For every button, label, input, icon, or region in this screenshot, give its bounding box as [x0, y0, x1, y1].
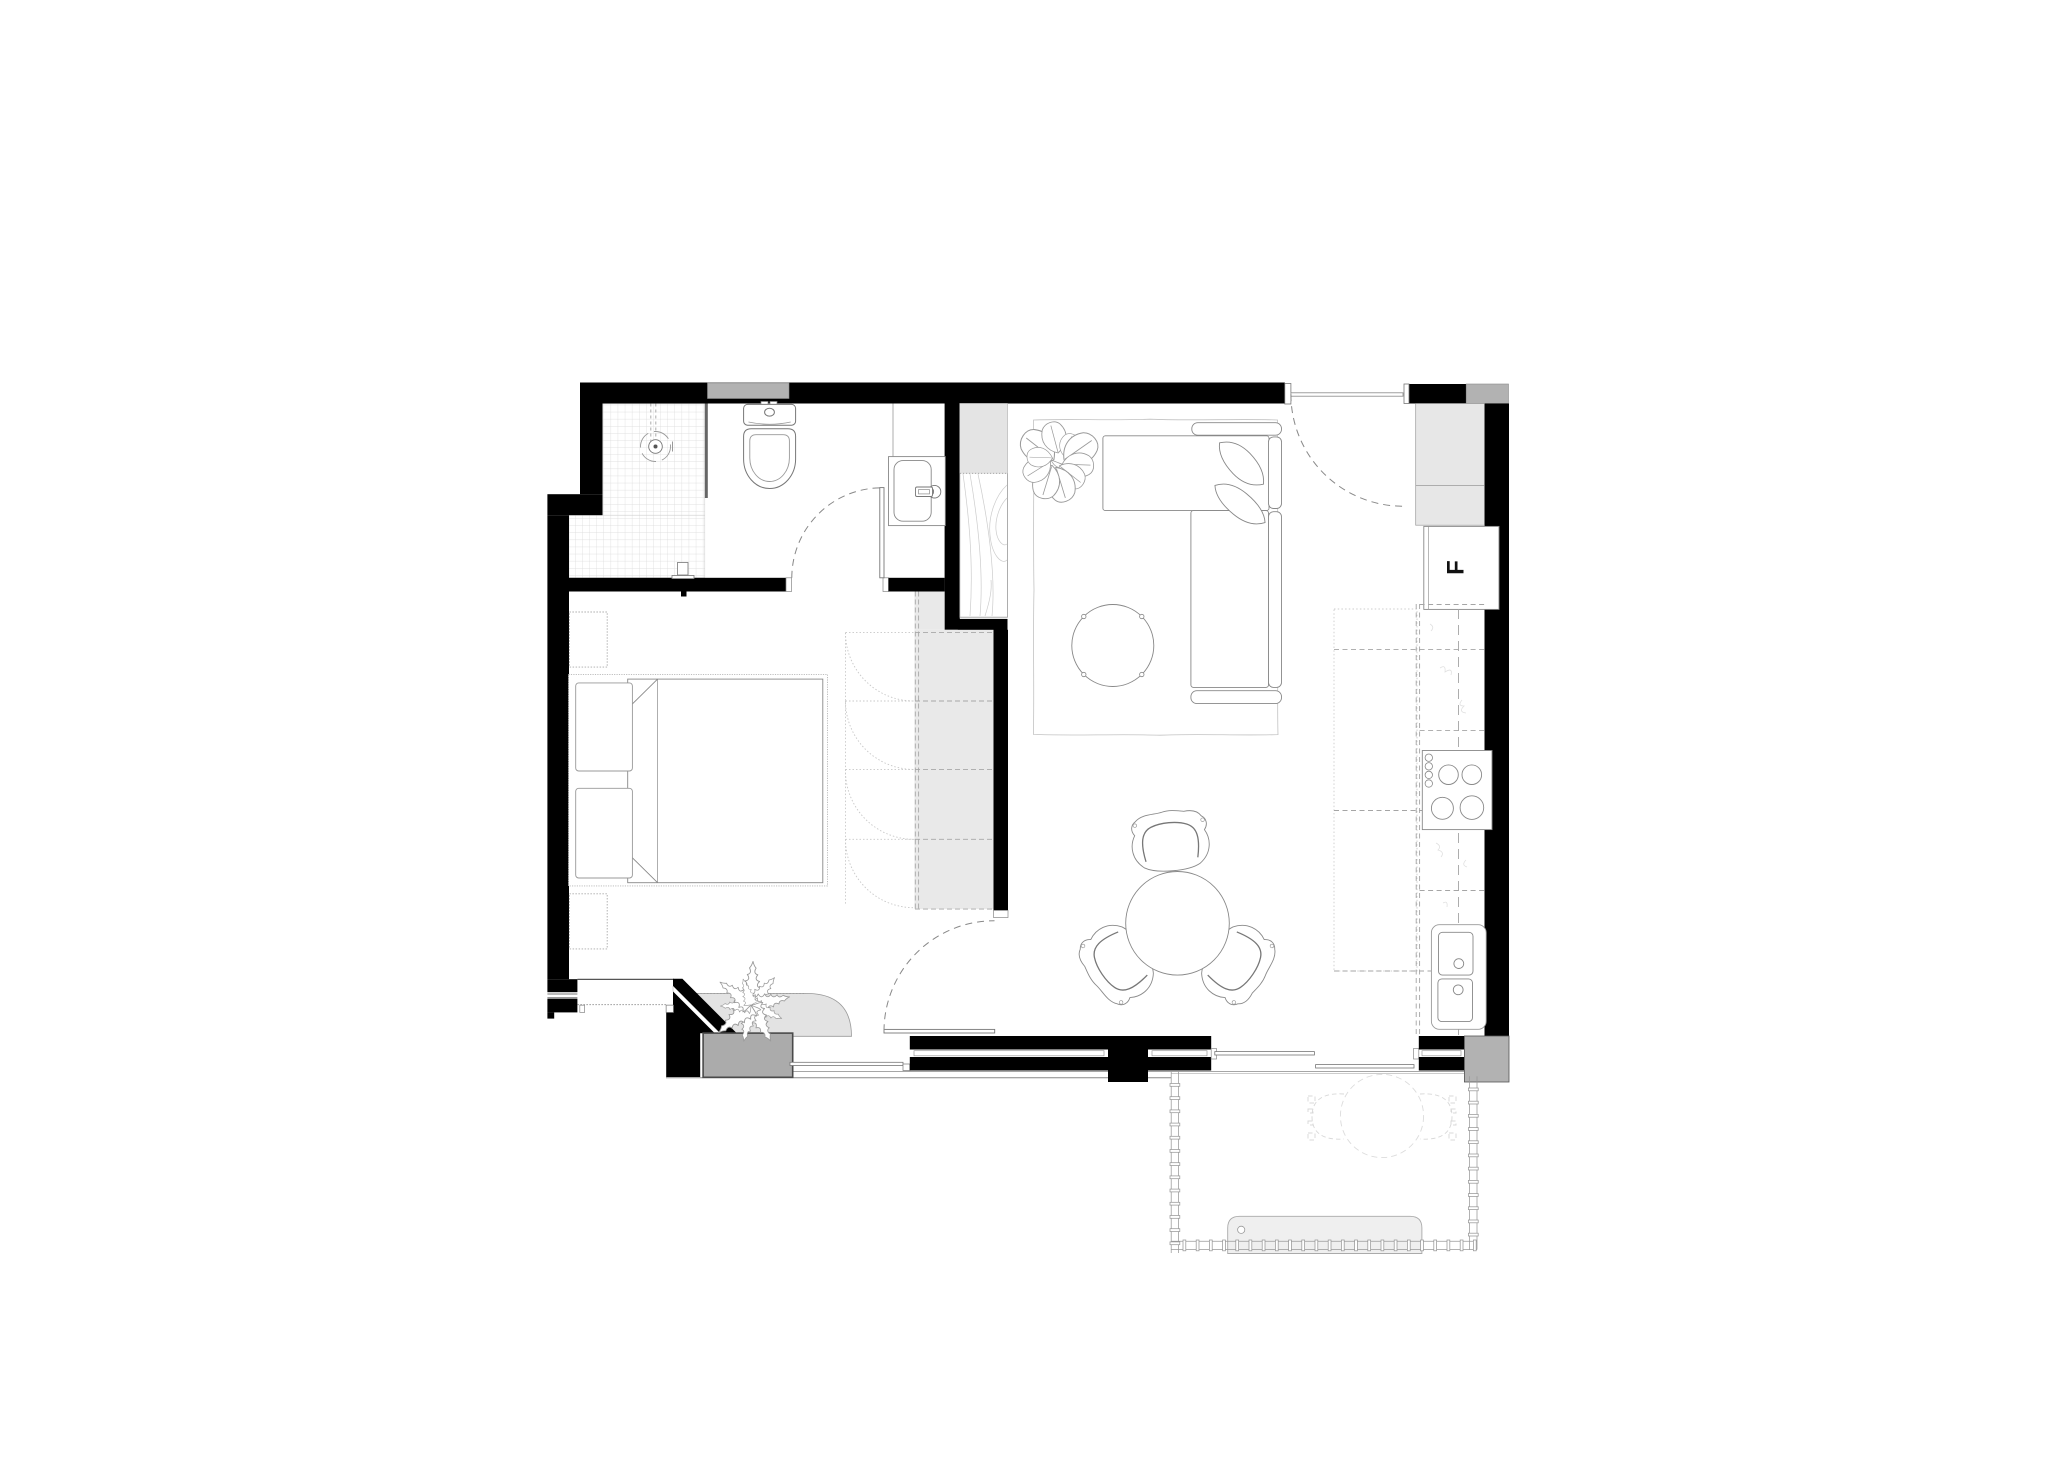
svg-text:F: F	[1443, 560, 1470, 575]
